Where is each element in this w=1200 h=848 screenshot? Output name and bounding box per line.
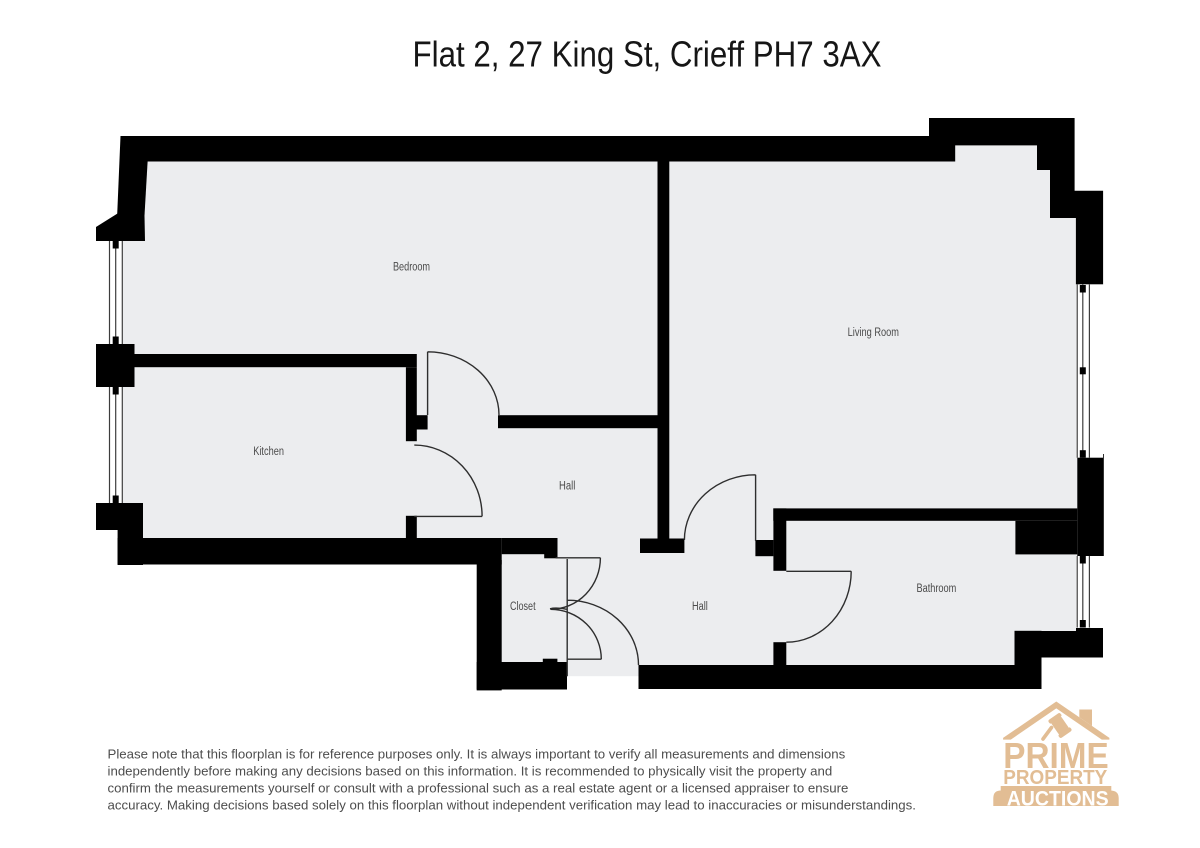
- svg-text:Living Room: Living Room: [848, 327, 899, 339]
- svg-text:Kitchen: Kitchen: [253, 446, 284, 458]
- svg-text:Hall: Hall: [559, 481, 575, 493]
- svg-text:Flat 2, 27 King St, Crieff PH7: Flat 2, 27 King St, Crieff PH7 3AX: [413, 34, 882, 75]
- svg-text:accuracy. Making decisions bas: accuracy. Making decisions based solely …: [108, 798, 916, 813]
- svg-text:AUCTIONS: AUCTIONS: [1007, 787, 1109, 810]
- svg-text:confirm the measurements yours: confirm the measurements yourself or con…: [108, 781, 849, 796]
- svg-text:PROPERTY: PROPERTY: [1003, 767, 1108, 789]
- svg-text:Bedroom: Bedroom: [393, 261, 430, 273]
- svg-text:Please note that this floorpla: Please note that this floorplan is for r…: [108, 747, 846, 762]
- svg-text:Bathroom: Bathroom: [916, 583, 956, 595]
- svg-text:Hall: Hall: [692, 601, 708, 613]
- svg-text:Closet: Closet: [510, 601, 536, 613]
- svg-text:independently before making an: independently before making any decision…: [108, 764, 833, 779]
